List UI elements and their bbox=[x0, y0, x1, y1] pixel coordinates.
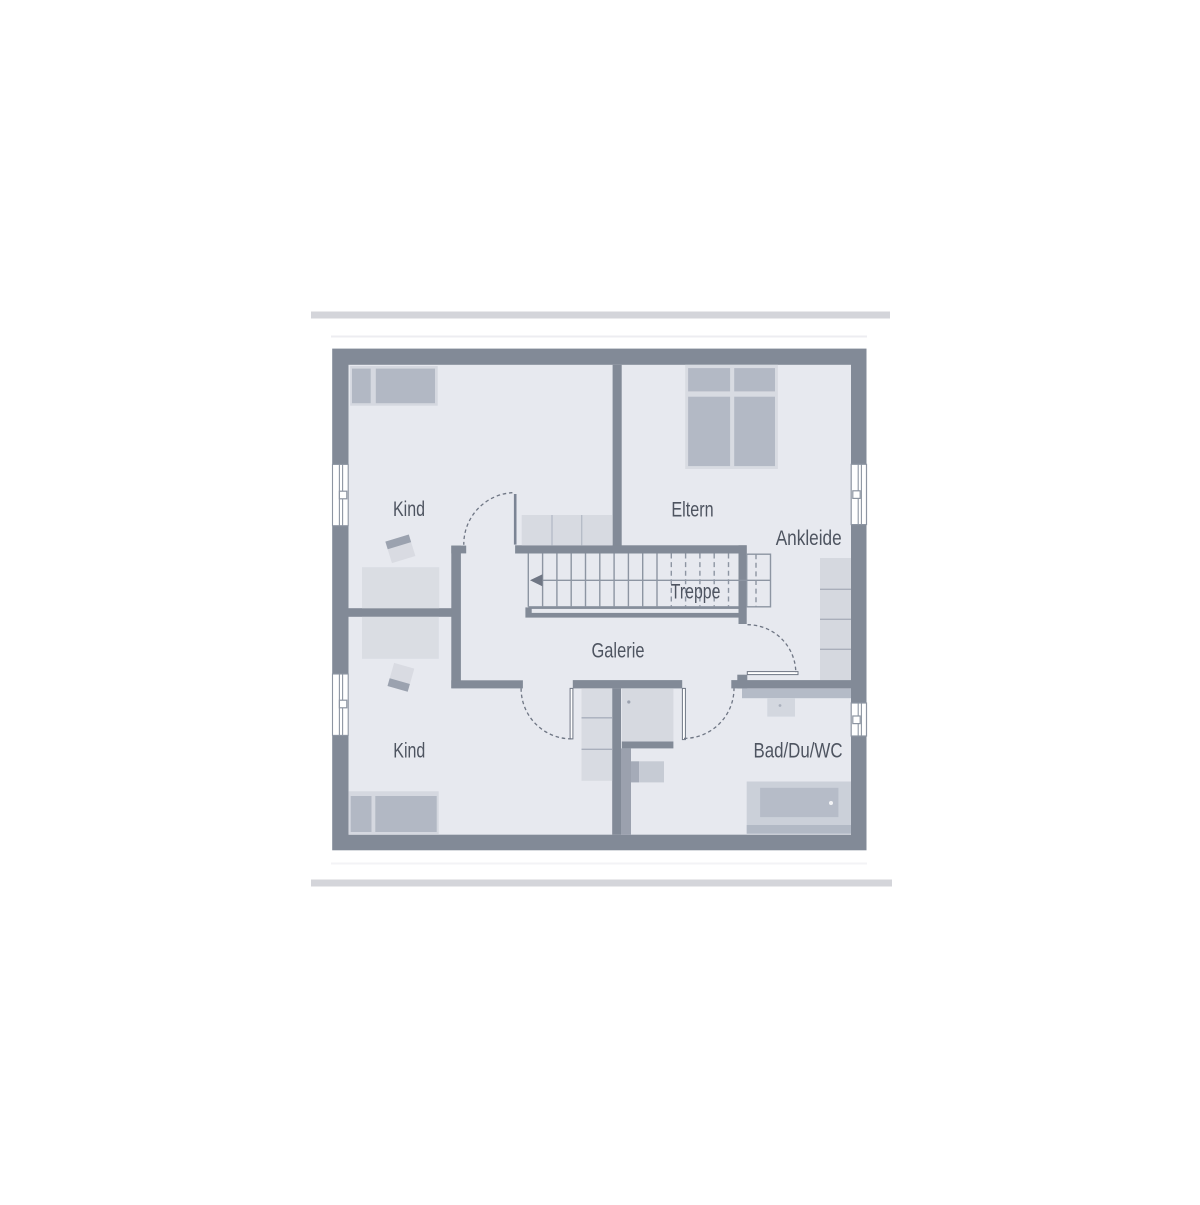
svg-text:Eltern: Eltern bbox=[671, 499, 713, 522]
svg-text:Kind: Kind bbox=[393, 740, 425, 763]
svg-text:Ankleide: Ankleide bbox=[776, 527, 842, 550]
svg-text:Bad/Du/WC: Bad/Du/WC bbox=[754, 739, 843, 762]
svg-text:Galerie: Galerie bbox=[592, 639, 645, 662]
svg-text:Kind: Kind bbox=[393, 498, 425, 521]
svg-text:Treppe: Treppe bbox=[671, 581, 721, 604]
